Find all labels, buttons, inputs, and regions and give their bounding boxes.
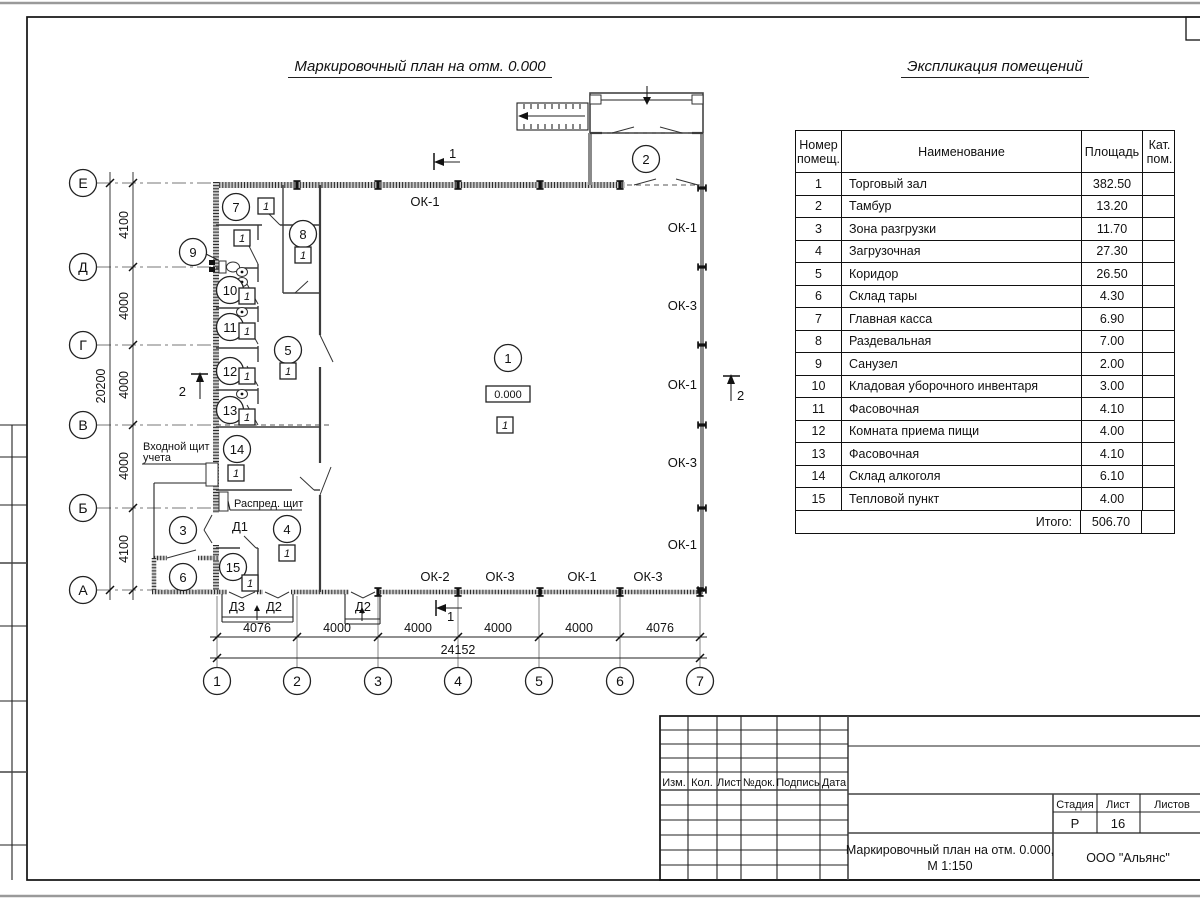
svg-text:7: 7 bbox=[696, 673, 704, 689]
side-stamp bbox=[0, 425, 27, 880]
title-block: Изм. Кол. Лист №док. Подпись Дата Стадия… bbox=[660, 716, 1200, 880]
svg-text:1: 1 bbox=[300, 250, 306, 262]
svg-text:1: 1 bbox=[244, 371, 250, 383]
svg-text:4100: 4100 bbox=[117, 535, 131, 563]
svg-text:11: 11 bbox=[223, 320, 237, 335]
svg-text:1: 1 bbox=[263, 201, 269, 213]
svg-text:10: 10 bbox=[223, 283, 237, 298]
svg-text:Г: Г bbox=[79, 337, 87, 353]
section-marks: 1 1 2 2 bbox=[179, 146, 744, 624]
svg-text:4000: 4000 bbox=[323, 621, 351, 635]
rev-col-data: Дата bbox=[822, 777, 847, 789]
svg-text:6: 6 bbox=[616, 673, 624, 689]
svg-text:0.000: 0.000 bbox=[494, 389, 522, 401]
svg-text:4: 4 bbox=[454, 673, 462, 689]
svg-text:2: 2 bbox=[642, 152, 649, 167]
svg-text:8: 8 bbox=[299, 227, 306, 242]
svg-text:1: 1 bbox=[244, 412, 250, 424]
axis-lines-bottom bbox=[217, 596, 700, 668]
entry-panel: Входной щит учета bbox=[142, 441, 218, 486]
sheet-label: Лист bbox=[1106, 799, 1130, 811]
interior-partitions bbox=[204, 185, 333, 592]
svg-text:4076: 4076 bbox=[646, 621, 674, 635]
svg-text:1: 1 bbox=[449, 146, 456, 161]
door-label-d2b: Д2 bbox=[355, 599, 371, 614]
svg-text:5: 5 bbox=[284, 343, 291, 358]
rev-col-kol: Кол. bbox=[691, 777, 713, 789]
svg-text:Б: Б bbox=[78, 500, 87, 516]
svg-text:1: 1 bbox=[285, 366, 291, 378]
svg-text:5: 5 bbox=[535, 673, 543, 689]
svg-text:ОК-1: ОК-1 bbox=[410, 194, 439, 209]
svg-text:ОК-3: ОК-3 bbox=[633, 569, 662, 584]
svg-text:В: В bbox=[78, 417, 87, 433]
svg-text:Е: Е bbox=[78, 175, 87, 191]
svg-text:ОК-3: ОК-3 bbox=[668, 455, 697, 470]
rev-col-izm: Изм. bbox=[662, 777, 686, 789]
svg-text:12: 12 bbox=[223, 364, 237, 379]
svg-text:1: 1 bbox=[244, 326, 250, 338]
stage-label: Стадия bbox=[1056, 799, 1094, 811]
svg-text:4100: 4100 bbox=[117, 211, 131, 239]
porch-2: Д2 bbox=[345, 594, 380, 624]
svg-text:1: 1 bbox=[504, 351, 511, 366]
svg-text:1: 1 bbox=[447, 609, 454, 624]
door-label-d1: Д1 bbox=[232, 519, 248, 534]
svg-text:3: 3 bbox=[179, 523, 186, 538]
doc-title-line2: М 1:150 bbox=[927, 859, 972, 873]
svg-text:1: 1 bbox=[239, 233, 245, 245]
svg-text:ОК-3: ОК-3 bbox=[485, 569, 514, 584]
svg-text:13: 13 bbox=[223, 403, 237, 418]
distribution-panel: Распред. щит bbox=[219, 492, 303, 511]
svg-text:4076: 4076 bbox=[243, 621, 271, 635]
company-name: ООО "Альянс" bbox=[1086, 851, 1170, 865]
svg-text:1: 1 bbox=[233, 468, 239, 480]
svg-text:4000: 4000 bbox=[565, 621, 593, 635]
sheets-label: Листов bbox=[1154, 799, 1190, 811]
svg-text:учета: учета bbox=[143, 452, 172, 464]
svg-text:6: 6 bbox=[179, 570, 186, 585]
entrance-ramp bbox=[517, 103, 588, 130]
svg-text:ОК-3: ОК-3 bbox=[668, 298, 697, 313]
svg-text:9: 9 bbox=[189, 245, 196, 260]
porch-1: Д3 Д2 bbox=[222, 594, 293, 622]
window-labels: ОК-1 ОК-1 ОК-3 ОК-1 ОК-3 ОК-1 ОК-2 ОК-3 … bbox=[410, 194, 697, 584]
svg-text:ОК-1: ОК-1 bbox=[668, 220, 697, 235]
stage-value: Р bbox=[1071, 816, 1080, 831]
door-type-marks: 1 1 1 1 1 1 1 1 1 1 1 1 bbox=[228, 198, 513, 591]
door-label-d2: Д2 bbox=[266, 599, 282, 614]
svg-text:3: 3 bbox=[374, 673, 382, 689]
door-label-d3: Д3 bbox=[229, 599, 245, 614]
svg-text:ОК-1: ОК-1 bbox=[668, 377, 697, 392]
svg-text:4000: 4000 bbox=[404, 621, 432, 635]
dimensions-bottom: 4076 4000 4000 4000 4000 4076 24152 bbox=[210, 621, 707, 662]
doc-title-line1: Маркировочный план на отм. 0.000, bbox=[846, 843, 1054, 857]
axis-circles-left: Е Д Г В Б А bbox=[70, 170, 97, 604]
svg-text:24152: 24152 bbox=[441, 643, 476, 657]
svg-text:1: 1 bbox=[247, 578, 253, 590]
svg-text:1: 1 bbox=[244, 291, 250, 303]
svg-text:Распред. щит: Распред. щит bbox=[234, 498, 303, 510]
svg-text:4000: 4000 bbox=[117, 292, 131, 320]
svg-text:4000: 4000 bbox=[117, 371, 131, 399]
corner-box bbox=[1186, 17, 1200, 40]
svg-text:Д: Д bbox=[78, 259, 88, 275]
svg-text:1: 1 bbox=[284, 548, 290, 560]
svg-text:4000: 4000 bbox=[484, 621, 512, 635]
dimensions-left: 4100 4000 4000 4000 4100 20200 bbox=[94, 172, 137, 600]
svg-text:15: 15 bbox=[226, 560, 240, 575]
svg-text:ОК-2: ОК-2 bbox=[420, 569, 449, 584]
svg-text:ОК-1: ОК-1 bbox=[567, 569, 596, 584]
svg-text:А: А bbox=[78, 582, 88, 598]
rev-col-ndok: №док. bbox=[743, 777, 775, 789]
axis-circles-bottom: 1 2 3 4 5 6 7 bbox=[204, 668, 714, 695]
svg-text:4000: 4000 bbox=[117, 452, 131, 480]
sheet-value: 16 bbox=[1111, 816, 1125, 831]
svg-text:1: 1 bbox=[502, 420, 508, 432]
svg-text:1: 1 bbox=[213, 673, 221, 689]
svg-text:7: 7 bbox=[232, 200, 239, 215]
svg-text:2: 2 bbox=[179, 384, 186, 399]
svg-text:4: 4 bbox=[283, 522, 290, 537]
elevation-mark: 0.000 bbox=[486, 386, 530, 402]
rev-col-podpis: Подпись bbox=[776, 777, 820, 789]
svg-text:ОК-1: ОК-1 bbox=[668, 537, 697, 552]
rev-col-list: Лист bbox=[717, 777, 741, 789]
plan-drawing: 4100 4000 4000 4000 4100 20200 4076 4000… bbox=[0, 0, 1200, 900]
svg-text:2: 2 bbox=[293, 673, 301, 689]
svg-text:14: 14 bbox=[230, 442, 244, 457]
svg-text:20200: 20200 bbox=[94, 369, 108, 404]
svg-text:2: 2 bbox=[737, 388, 744, 403]
vestibule bbox=[517, 86, 703, 185]
drawing-sheet: Маркировочный план на отм. 0.000 Эксплик… bbox=[0, 0, 1200, 900]
